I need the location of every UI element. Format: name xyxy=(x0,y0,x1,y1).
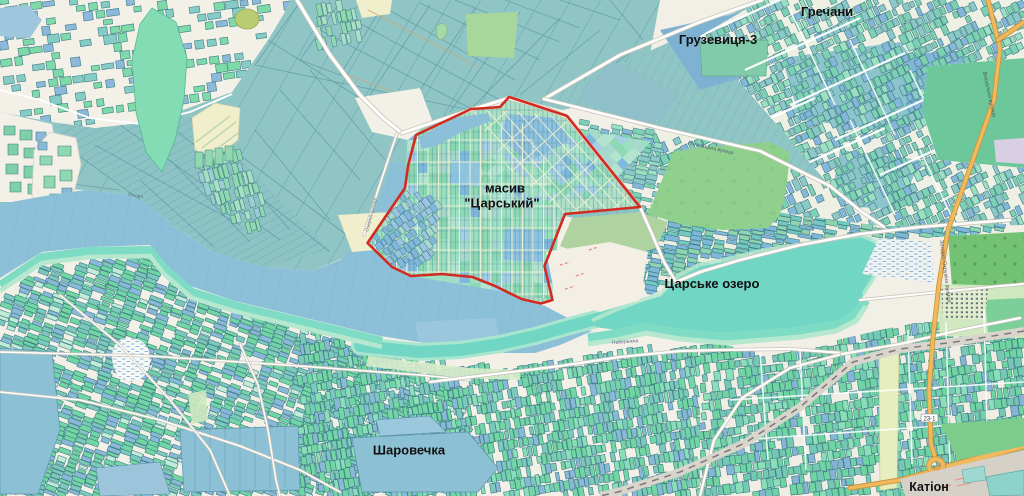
svg-text:масив: масив xyxy=(485,181,525,196)
svg-text:Шаровечка: Шаровечка xyxy=(373,443,446,458)
svg-text:23-1: 23-1 xyxy=(923,417,936,423)
svg-text:Гречани: Гречани xyxy=(801,4,853,19)
svg-text:Царське озеро: Царське озеро xyxy=(665,276,760,291)
svg-text:"Царський": "Царський" xyxy=(464,196,539,211)
svg-text:Грузевиця-3: Грузевиця-3 xyxy=(679,32,757,47)
svg-text:Катіон: Катіон xyxy=(909,480,949,494)
